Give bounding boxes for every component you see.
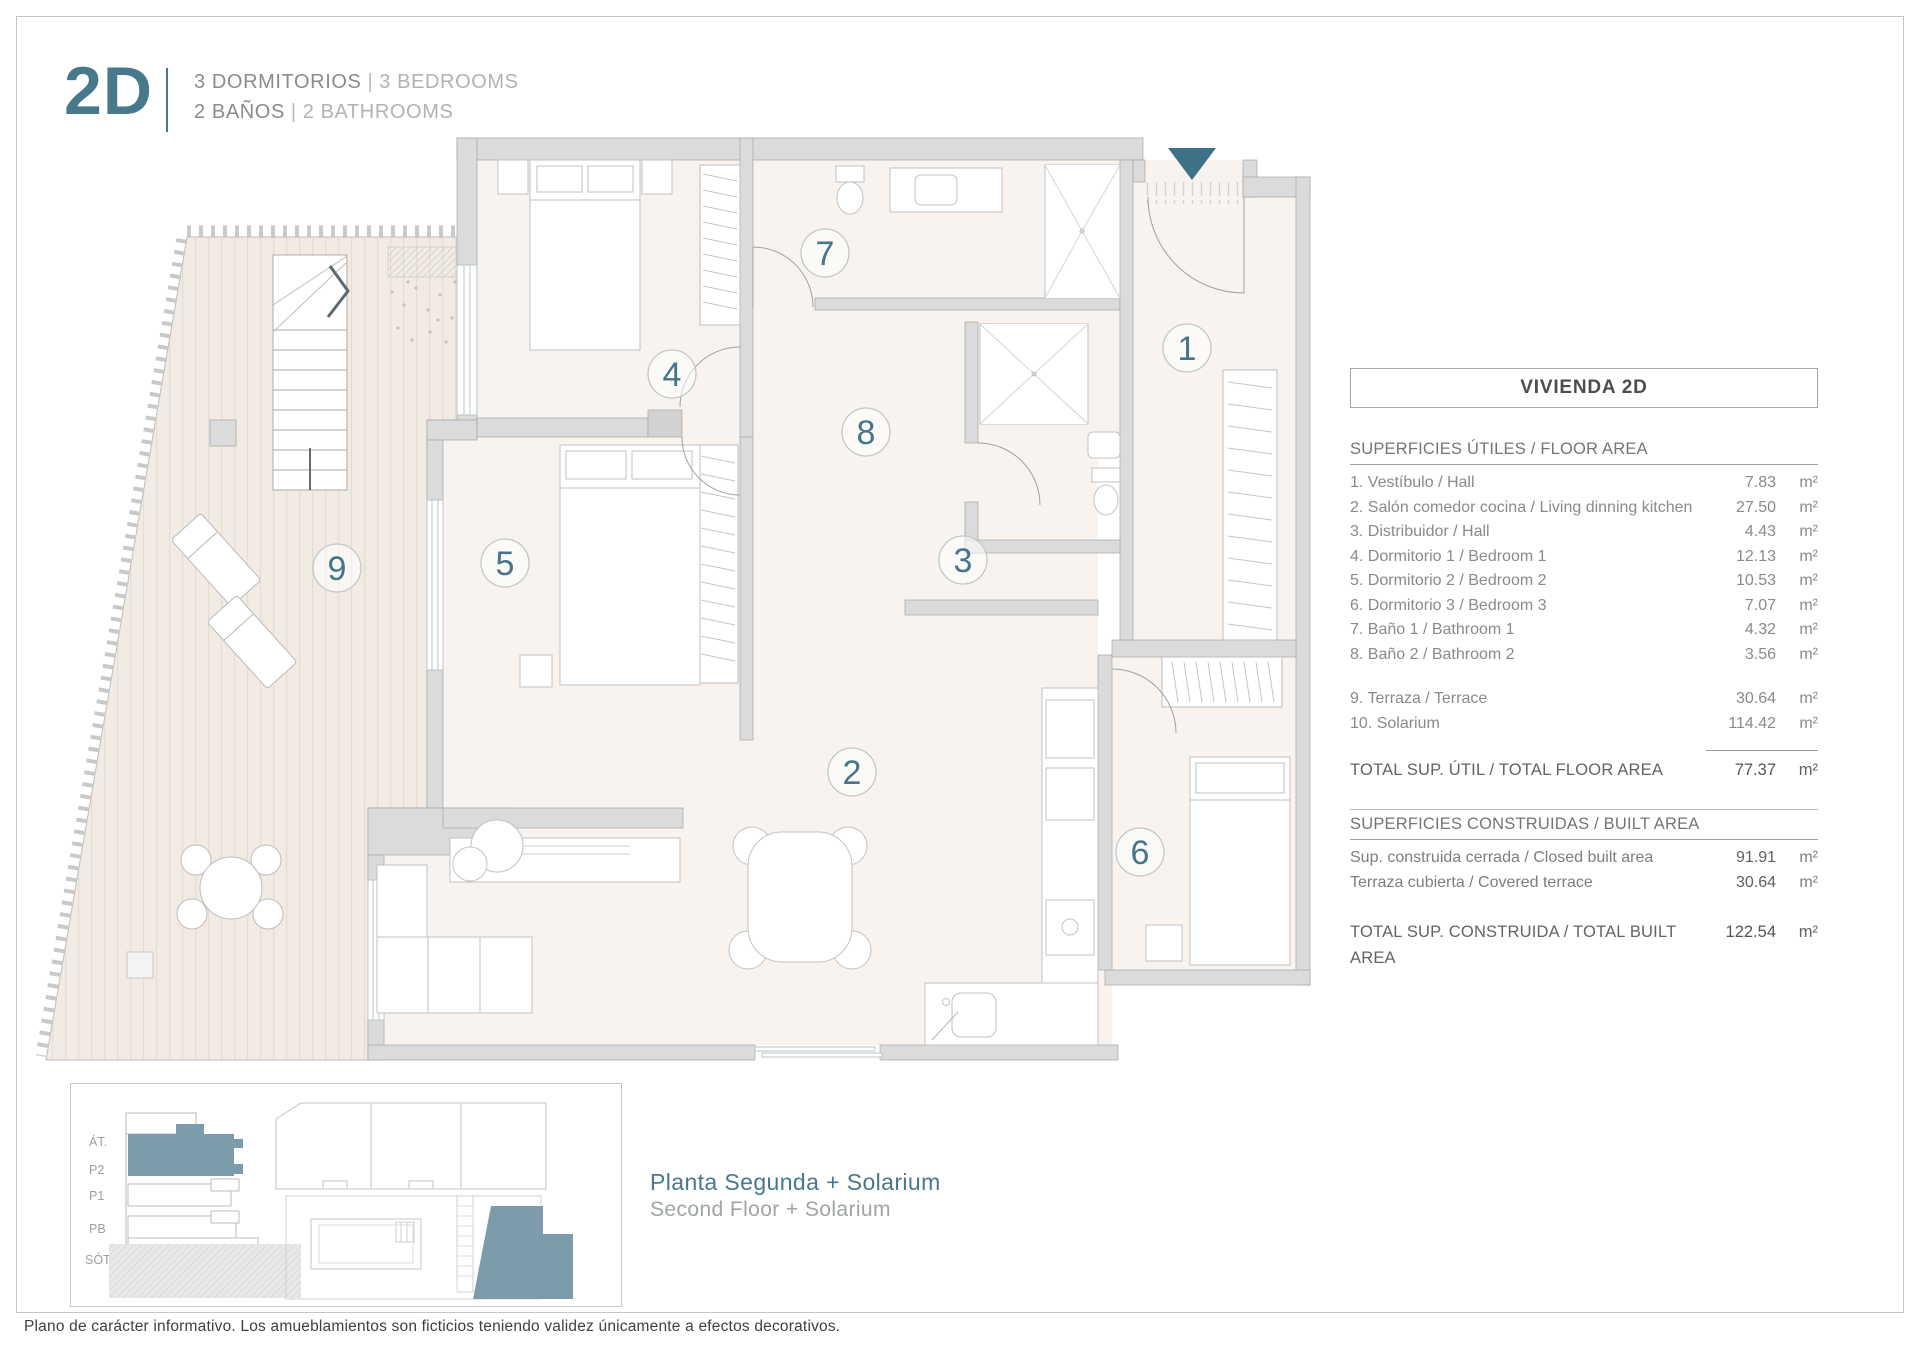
table-row: 3. Distribuidor / Hall4.43m² <box>1350 520 1818 545</box>
table-row: 1. Vestíbulo / Hall7.83m² <box>1350 471 1818 496</box>
stairs <box>273 255 348 490</box>
entry-mat <box>1145 182 1243 204</box>
table-row: 6. Dormitorio 3 / Bedroom 37.07m² <box>1350 594 1818 619</box>
table-row: 2. Salón comedor cocina / Living dinning… <box>1350 496 1818 521</box>
level-label: PB <box>89 1222 106 1236</box>
floor-area-section: SUPERFICIES ÚTILES / FLOOR AREA 1. Vestí… <box>1350 440 1818 783</box>
table-row: 8. Baño 2 / Bathroom 23.56m² <box>1350 643 1818 668</box>
table-title: VIVIENDA 2D <box>1350 368 1818 408</box>
room-badge-6: 6 <box>1116 828 1164 876</box>
closet-bedroom3 <box>1162 657 1282 707</box>
table-row: 7. Baño 1 / Bathroom 14.32m² <box>1350 618 1818 643</box>
table-row: 4. Dormitorio 1 / Bedroom 112.13m² <box>1350 545 1818 570</box>
area-table: VIVIENDA 2D SUPERFICIES ÚTILES / FLOOR A… <box>1350 368 1818 971</box>
svg-text:5: 5 <box>496 545 515 583</box>
shower-bathroom2 <box>980 324 1088 424</box>
closet-bedroom1 <box>700 165 740 325</box>
room-badge-5: 5 <box>481 539 529 587</box>
level-label: SÓT. <box>85 1252 113 1267</box>
built-area-section: SUPERFICIES CONSTRUIDAS / BUILT AREA Sup… <box>1350 809 1818 971</box>
floorplan-sheet: 2D 3 DORMITORIOS|3 BEDROOMS 2 BAÑOS|2 BA… <box>0 0 1920 1357</box>
table-row: Sup. construida cerrada / Closed built a… <box>1350 846 1818 871</box>
svg-text:4: 4 <box>663 356 682 394</box>
site-plan <box>276 1103 573 1299</box>
location-inset: ÁT. P2 P1 PB SÓT. <box>70 1083 622 1307</box>
total-built-area-row: TOTAL SUP. CONSTRUIDA / TOTAL BUILT AREA… <box>1350 919 1818 971</box>
level-label: ÁT. <box>89 1134 107 1149</box>
svg-text:8: 8 <box>857 414 876 452</box>
inset-diagrams: ÁT. P2 P1 PB SÓT. <box>71 1084 621 1306</box>
svg-text:6: 6 <box>1131 834 1150 872</box>
closet-bedroom2 <box>698 445 738 683</box>
built-area-heading: SUPERFICIES CONSTRUIDAS / BUILT AREA <box>1350 815 1818 840</box>
room-badge-2: 2 <box>828 748 876 796</box>
svg-text:2: 2 <box>843 754 862 792</box>
floor-caption-en: Second Floor + Solarium <box>650 1196 941 1224</box>
floor-area-heading: SUPERFICIES ÚTILES / FLOOR AREA <box>1350 440 1818 465</box>
table-row: 9. Terraza / Terrace30.64m² <box>1350 687 1818 712</box>
room-badge-4: 4 <box>648 350 696 398</box>
floor-caption: Planta Segunda + Solarium Second Floor +… <box>650 1168 941 1224</box>
svg-text:7: 7 <box>816 235 835 273</box>
total-rule <box>1706 750 1818 751</box>
closet-hall <box>1223 370 1277 640</box>
room-badge-3: 3 <box>939 536 987 584</box>
svg-text:9: 9 <box>328 550 347 588</box>
room-badge-8: 8 <box>842 408 890 456</box>
room-badge-7: 7 <box>801 229 849 277</box>
terrace-column <box>210 420 236 446</box>
dining-table <box>729 827 871 969</box>
svg-text:1: 1 <box>1178 330 1197 368</box>
total-floor-area-row: TOTAL SUP. ÚTIL / TOTAL FLOOR AREA 77.37… <box>1350 757 1818 783</box>
floor-caption-es: Planta Segunda + Solarium <box>650 1168 941 1196</box>
svg-text:3: 3 <box>954 542 973 580</box>
highlighted-unit <box>473 1206 573 1299</box>
shower-bathroom1 <box>1045 165 1120 298</box>
room-badge-1: 1 <box>1163 324 1211 372</box>
building-section: ÁT. P2 P1 PB SÓT. <box>85 1113 301 1298</box>
sliding-door <box>755 1047 882 1057</box>
table-row: Terraza cubierta / Covered terrace30.64m… <box>1350 871 1818 896</box>
level-label: P2 <box>89 1163 104 1177</box>
disclaimer-text: Plano de carácter informativo. Los amueb… <box>24 1318 840 1336</box>
terrace-planter-box <box>127 952 153 978</box>
table-row: 10. Solarium114.42m² <box>1350 712 1818 737</box>
room-badge-9: 9 <box>313 544 361 592</box>
table-row: 5. Dormitorio 2 / Bedroom 210.53m² <box>1350 569 1818 594</box>
level-label: P1 <box>89 1189 104 1203</box>
